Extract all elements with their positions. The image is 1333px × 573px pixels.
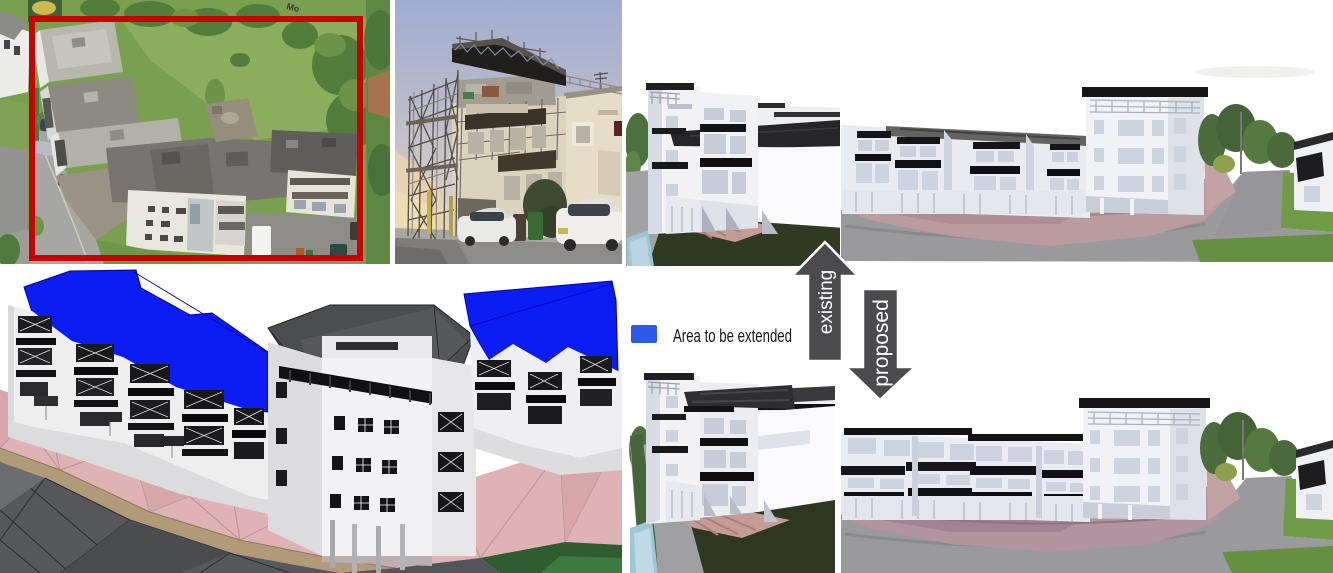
svg-text:Area to be extended: Area to be extended [673, 326, 792, 346]
svg-text:existing: existing [816, 270, 837, 334]
svg-text:proposed: proposed [870, 299, 893, 387]
